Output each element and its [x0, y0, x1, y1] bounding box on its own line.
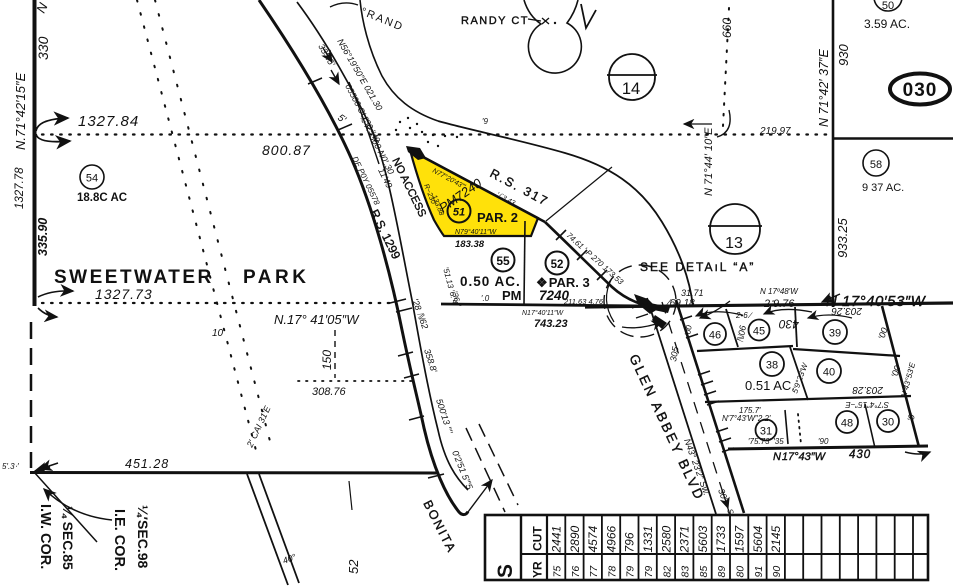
svg-text:2145: 2145 [769, 525, 783, 553]
svg-text:52: 52 [346, 559, 361, 574]
svg-text:48: 48 [841, 418, 853, 430]
svg-text:030: 030 [903, 80, 938, 101]
svg-text:330: 330 [35, 36, 51, 60]
svg-text:¼′SEC.98: ¼′SEC.98 [135, 505, 151, 568]
svg-text:0.50 AC.: 0.50 AC. [460, 274, 521, 289]
svg-text:1331: 1331 [641, 526, 655, 553]
svg-text:N 71°42′ 37″E: N 71°42′ 37″E [817, 49, 831, 127]
svg-text:1327.84: 1327.84 [78, 113, 139, 130]
svg-text:58: 58 [870, 159, 882, 171]
svg-text:14: 14 [622, 80, 640, 98]
svg-text:77: 77 [588, 565, 600, 578]
svg-text:50: 50 [882, 0, 894, 12]
svg-text:1327.73: 1327.73 [95, 286, 153, 302]
svg-text:2580: 2580 [659, 525, 673, 553]
svg-text:∕69.18: ∕69.18 [665, 298, 695, 309]
svg-text:N.17° 41′05″W: N.17° 41′05″W [274, 312, 360, 327]
svg-text:800.87: 800.87 [262, 142, 311, 158]
svg-text:930: 930 [836, 44, 851, 66]
svg-text:1597: 1597 [733, 524, 747, 552]
svg-text:211.63 4.76: 211.63 4.76 [563, 297, 604, 306]
svg-text:31: 31 [760, 426, 772, 438]
svg-text:430: 430 [849, 449, 871, 461]
svg-text:78: 78 [606, 566, 618, 578]
svg-text:SWEETWATER: SWEETWATER [54, 267, 214, 288]
svg-text:PARK: PARK [243, 267, 309, 288]
svg-text:38: 38 [766, 360, 778, 372]
svg-text:I.E. COR.: I.E. COR. [111, 509, 127, 571]
svg-text:308.76: 308.76 [312, 386, 347, 398]
svg-text:933.25: 933.25 [835, 217, 850, 258]
svg-text:N79°40′11″W: N79°40′11″W [455, 228, 497, 236]
svg-text:743.23: 743.23 [534, 318, 568, 330]
svg-text:335.90: 335.90 [36, 218, 50, 256]
svg-text:SEE DETAıL “A”: SEE DETAıL “A” [640, 260, 755, 274]
svg-text:10: 10 [212, 328, 224, 339]
svg-text:I.W. COR.: I.W. COR. [37, 504, 53, 569]
svg-text:46: 46 [709, 330, 721, 342]
svg-text:N.71°42′15″E: N.71°42′15″E [13, 72, 28, 150]
svg-text:4574: 4574 [586, 525, 600, 552]
svg-text:80: 80 [735, 566, 747, 578]
svg-text:′90: ′90 [818, 437, 829, 446]
svg-text:N′7°43′W′′2.2′: N′7°43′W′′2.2′ [722, 414, 771, 423]
svg-text:5604: 5604 [751, 525, 765, 552]
svg-text:CUT: CUT [531, 526, 545, 551]
svg-text:1327.78: 1327.78 [14, 167, 26, 209]
svg-text:18.8C AC: 18.8C AC [77, 192, 127, 204]
svg-text:2•6 ∕: 2•6 ∕ [735, 311, 753, 320]
svg-text:′9: ′9 [482, 117, 489, 126]
svg-text:′75.73′ ′35: ′75.73′ ′35 [748, 437, 784, 446]
svg-text:4966: 4966 [604, 525, 618, 552]
svg-text:45: 45 [753, 326, 765, 338]
svg-text:RANDY CT: RANDY CT [461, 15, 529, 27]
svg-text:796: 796 [623, 532, 637, 552]
svg-text:183.38: 183.38 [455, 239, 485, 250]
svg-text:75: 75 [552, 566, 564, 578]
svg-text:430: 430 [779, 317, 799, 331]
svg-text:PAR. 2: PAR. 2 [477, 210, 518, 225]
svg-text:31.71: 31.71 [681, 288, 704, 298]
svg-text:9 37 AC.: 9 37 AC. [862, 182, 904, 194]
svg-text:2441: 2441 [550, 526, 564, 554]
svg-text:¼ SEC.85: ¼ SEC.85 [60, 506, 76, 570]
svg-text:0.51 AC.: 0.51 AC. [745, 378, 795, 393]
svg-text:203.28: 203.28 [852, 384, 884, 395]
svg-text:2890: 2890 [568, 525, 582, 553]
svg-text:N 17°43″W: N 17°43″W [773, 451, 827, 463]
svg-text:PM: PM [502, 288, 522, 303]
svg-text:N 71°44′ 10″E: N 71°44′ 10″E [703, 127, 715, 196]
svg-text:5603: 5603 [696, 525, 710, 552]
svg-text:219.97: 219.97 [759, 126, 791, 137]
svg-text:13: 13 [725, 235, 743, 252]
svg-text:83: 83 [680, 566, 692, 578]
svg-text:5′.3⋅′: 5′.3⋅′ [2, 462, 19, 471]
svg-text:89: 89 [716, 566, 728, 578]
svg-text:′.0: ′.0 [481, 294, 490, 303]
svg-text:76: 76 [570, 566, 582, 578]
svg-text:54: 54 [86, 173, 98, 185]
svg-text:90: 90 [771, 566, 783, 578]
svg-text:451.28: 451.28 [125, 457, 169, 471]
svg-text:S′7°4′′15″−E: S′7°4′′15″−E [845, 400, 889, 409]
svg-text:30: 30 [882, 417, 894, 429]
svg-text:39: 39 [829, 328, 841, 340]
svg-text:2371: 2371 [678, 526, 692, 554]
svg-text:2∶9.76: 2∶9.76 [763, 298, 795, 310]
svg-text:S: S [494, 564, 517, 578]
svg-text:N 17º48′W: N 17º48′W [760, 287, 799, 296]
svg-text:′00: ′00 [683, 324, 694, 336]
svg-text:660: 660 [720, 18, 734, 38]
svg-text:52: 52 [551, 259, 564, 271]
svg-text:55: 55 [496, 254, 510, 268]
svg-text:91: 91 [753, 566, 765, 578]
svg-text:203.26: 203.26 [831, 305, 863, 316]
svg-text:1733: 1733 [714, 525, 728, 552]
svg-text:79: 79 [625, 566, 637, 578]
svg-text:YR: YR [531, 561, 545, 578]
svg-text:82: 82 [661, 566, 673, 578]
svg-text:3.59 AC.: 3.59 AC. [864, 17, 910, 31]
svg-text:40: 40 [823, 367, 835, 379]
svg-text:150: 150 [320, 350, 334, 370]
svg-text:85: 85 [698, 566, 710, 578]
svg-text:79: 79 [643, 566, 655, 578]
svg-text:N17°40′11″W: N17°40′11″W [522, 309, 564, 317]
